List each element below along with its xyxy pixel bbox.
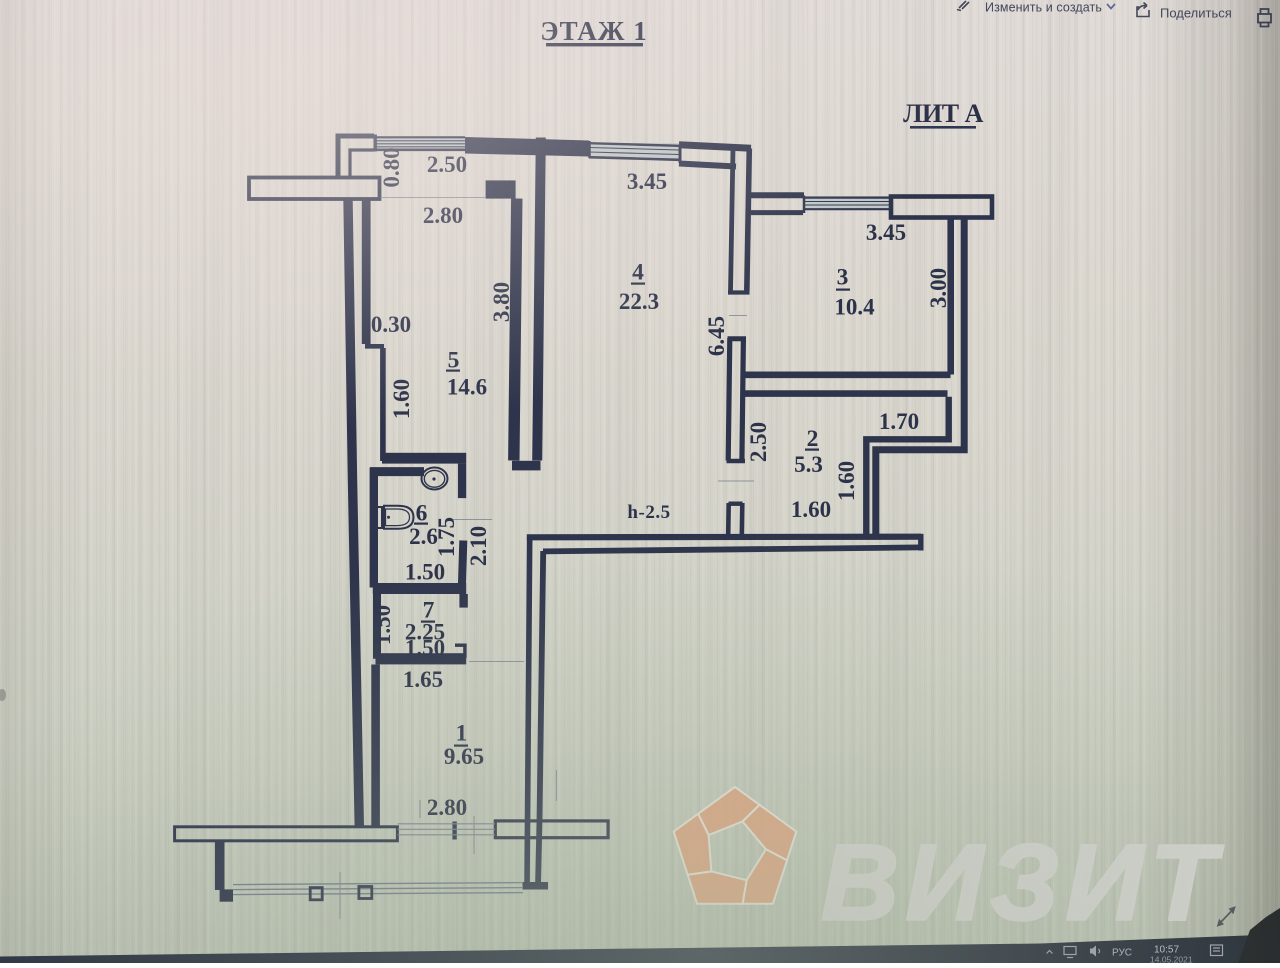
svg-text:22.3: 22.3 — [619, 289, 659, 314]
svg-text:6.45: 6.45 — [704, 316, 729, 356]
svg-text:1.50: 1.50 — [405, 636, 445, 661]
svg-text:ЭТАЖ 1: ЭТАЖ 1 — [540, 16, 647, 46]
svg-text:1.60: 1.60 — [389, 379, 414, 419]
svg-text:14.05.2021: 14.05.2021 — [1150, 955, 1193, 964]
svg-text:1.60: 1.60 — [791, 497, 831, 522]
svg-text:1.65: 1.65 — [403, 667, 443, 692]
svg-text:1.50: 1.50 — [405, 560, 445, 585]
svg-text:1: 1 — [456, 721, 468, 747]
svg-text:Поделиться: Поделиться — [1160, 6, 1232, 21]
svg-text:0.80: 0.80 — [379, 147, 404, 187]
svg-text:10.4: 10.4 — [834, 295, 875, 320]
svg-text:Изменить и создать: Изменить и создать — [985, 1, 1102, 15]
svg-text:2: 2 — [807, 426, 819, 452]
svg-text:3.80: 3.80 — [489, 282, 514, 322]
svg-text:7: 7 — [423, 598, 435, 624]
svg-text:2.80: 2.80 — [423, 203, 463, 228]
svg-text:h-2.5: h-2.5 — [627, 502, 670, 523]
svg-text:РУС: РУС — [1112, 948, 1132, 959]
svg-text:5.3: 5.3 — [794, 452, 823, 477]
svg-text:14.6: 14.6 — [447, 375, 487, 400]
svg-text:1.50: 1.50 — [370, 605, 395, 645]
svg-text:2.50: 2.50 — [427, 152, 467, 177]
svg-text:3.00: 3.00 — [926, 268, 951, 308]
svg-text:9.65: 9.65 — [444, 744, 484, 769]
svg-text:3.45: 3.45 — [866, 220, 906, 245]
svg-text:3: 3 — [837, 265, 849, 291]
svg-text:1.75: 1.75 — [434, 517, 459, 557]
svg-text:2.10: 2.10 — [466, 526, 491, 566]
svg-text:ВИЗИТ: ВИЗИТ — [821, 822, 1224, 943]
svg-text:4: 4 — [632, 260, 644, 286]
svg-text:2.80: 2.80 — [427, 795, 467, 820]
svg-text:3.45: 3.45 — [627, 169, 667, 194]
svg-text:ЛИТ А: ЛИТ А — [903, 99, 983, 128]
svg-text:1.70: 1.70 — [879, 409, 919, 434]
svg-text:1.60: 1.60 — [834, 461, 859, 501]
svg-text:2.50: 2.50 — [746, 422, 771, 462]
svg-text:0.30: 0.30 — [371, 312, 411, 337]
